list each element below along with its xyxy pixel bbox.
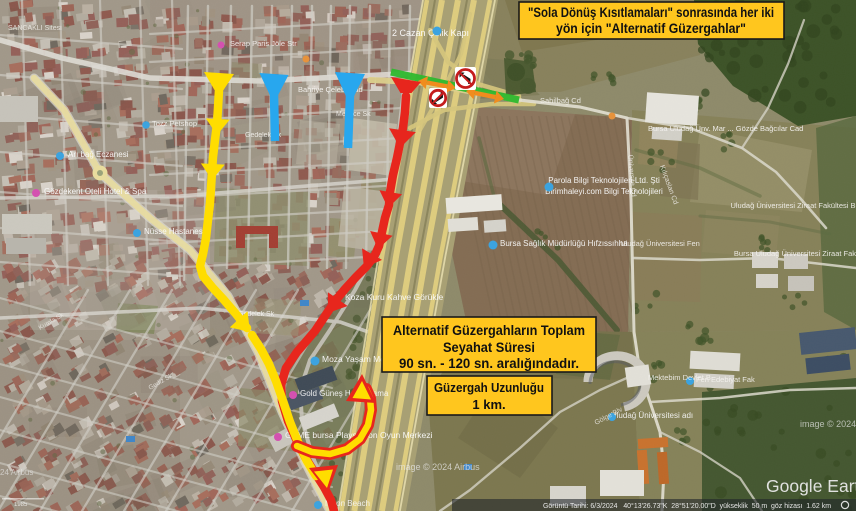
svg-text:yön için "Alternatif Güzergahl: yön için "Alternatif Güzergahlar" <box>556 21 746 36</box>
svg-text:1985: 1985 <box>14 502 28 508</box>
svg-text:Seyahat Süresi: Seyahat Süresi <box>443 340 535 355</box>
svg-text:Google Earth: Google Earth <box>766 476 856 496</box>
svg-text:90 sn. - 120 sn. aralığındadır: 90 sn. - 120 sn. aralığındadır. <box>399 356 579 371</box>
svg-text:"Sola Dönüş Kısıtlamaları" son: "Sola Dönüş Kısıtlamaları" sonrasında he… <box>528 5 774 20</box>
svg-text:1 km.: 1 km. <box>472 397 505 412</box>
svg-text:Alternatif Güzergahların Topla: Alternatif Güzergahların Toplam <box>393 323 585 338</box>
svg-text:Görüntü Tarihi: 6/3/2024 40°: Görüntü Tarihi: 6/3/2024 40°13'26.73"K 2… <box>543 501 831 510</box>
svg-text:Güzergah Uzunluğu: Güzergah Uzunluğu <box>434 380 544 395</box>
